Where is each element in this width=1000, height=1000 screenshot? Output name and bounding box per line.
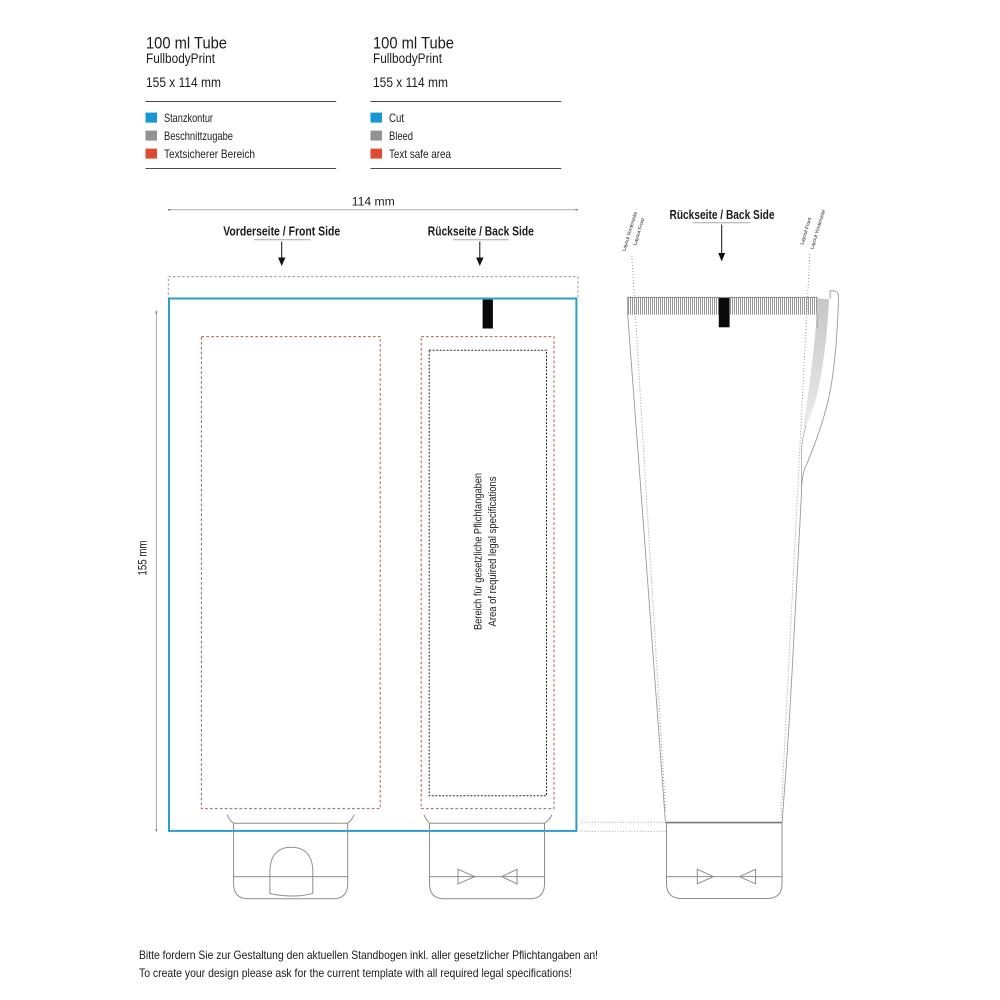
svg-text:Stanzkontur: Stanzkontur (164, 111, 213, 125)
svg-text:155 x 114 mm: 155 x 114 mm (146, 75, 221, 90)
svg-text:Bereich für gesetzliche Pflich: Bereich für gesetzliche Pflichtangaben (473, 473, 485, 630)
svg-text:FullbodyPrint: FullbodyPrint (373, 51, 442, 66)
svg-text:114 mm: 114 mm (352, 195, 395, 209)
svg-text:Bitte fordern Sie zur Gestaltu: Bitte fordern Sie zur Gestaltung den akt… (139, 948, 598, 962)
svg-text:FullbodyPrint: FullbodyPrint (146, 51, 215, 66)
svg-text:100 ml Tube: 100 ml Tube (373, 35, 454, 53)
svg-text:Beschnittzugabe: Beschnittzugabe (164, 129, 233, 143)
svg-text:Text safe area: Text safe area (389, 147, 451, 161)
svg-text:Rückseite / Back Side: Rückseite / Back Side (428, 224, 534, 238)
svg-text:155 x 114 mm: 155 x 114 mm (373, 75, 448, 90)
svg-text:Area of required legal specifi: Area of required legal specifications (487, 476, 499, 627)
svg-text:Vorderseite / Front Side: Vorderseite / Front Side (223, 224, 340, 238)
svg-text:Textsicherer Bereich: Textsicherer Bereich (164, 147, 255, 161)
svg-text:Bleed: Bleed (389, 129, 413, 143)
svg-text:155 mm: 155 mm (136, 541, 150, 576)
svg-text:100 ml Tube: 100 ml Tube (146, 35, 227, 53)
svg-text:Rückseite / Back Side: Rückseite / Back Side (670, 208, 775, 222)
svg-text:Cut: Cut (389, 111, 405, 125)
svg-text:To create your design please a: To create your design please ask for the… (139, 966, 572, 980)
